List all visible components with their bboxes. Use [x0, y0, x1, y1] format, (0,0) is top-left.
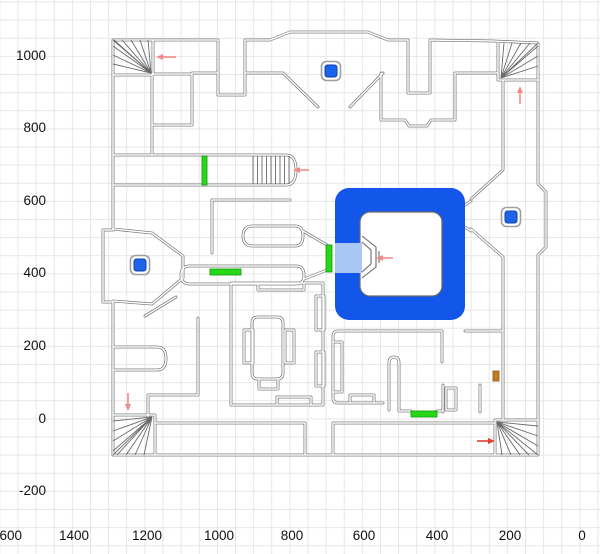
- y-axis-tick-200: 200: [2, 338, 46, 354]
- item-marker: [325, 65, 337, 77]
- blue-zone: [335, 188, 465, 320]
- orange-door-marker: [493, 371, 499, 381]
- item-marker: [505, 211, 517, 223]
- y-axis-tick-400: 400: [2, 265, 46, 281]
- wall-layer: [103, 32, 546, 455]
- floorplan-canvas[interactable]: [0, 0, 600, 554]
- x-axis-tick-600: 600: [334, 528, 394, 544]
- direction-arrow-head: [517, 86, 523, 93]
- y-axis-tick-1000: 1000: [2, 48, 46, 64]
- vestibule-entrance: [335, 243, 362, 273]
- stairs-and-fan-hatching: [113, 40, 538, 455]
- y-axis-tick-800: 800: [2, 120, 46, 136]
- y-axis-tick-0: 0: [2, 411, 46, 427]
- x-axis-tick-1200: 1200: [117, 528, 177, 544]
- x-axis-tick-800: 800: [262, 528, 322, 544]
- wall-outline-inner: [103, 32, 546, 455]
- x-axis-tick-200: 200: [480, 528, 540, 544]
- x-axis-tick-1000: 1000: [189, 528, 249, 544]
- direction-arrow-head: [156, 54, 163, 60]
- green-door-marker: [210, 269, 241, 275]
- x-axis-tick-1600: 1600: [0, 528, 37, 544]
- item-marker: [134, 259, 146, 271]
- map-viewport[interactable]: 1000 800 600 400 200 0 -200 1600 1400 12…: [0, 0, 600, 554]
- x-axis-tick-1400: 1400: [44, 528, 104, 544]
- inner-courtyard: [360, 212, 442, 296]
- y-axis-tick-600: 600: [2, 193, 46, 209]
- y-axis-tick-neg200: -200: [2, 483, 46, 499]
- direction-arrow-head: [125, 404, 131, 411]
- green-door-marker: [326, 245, 332, 272]
- hatch-layer: [113, 40, 538, 455]
- green-door-marker: [411, 411, 437, 417]
- x-axis-tick-0: 0: [552, 528, 600, 544]
- x-axis-tick-400: 400: [407, 528, 467, 544]
- green-door-marker: [202, 156, 207, 185]
